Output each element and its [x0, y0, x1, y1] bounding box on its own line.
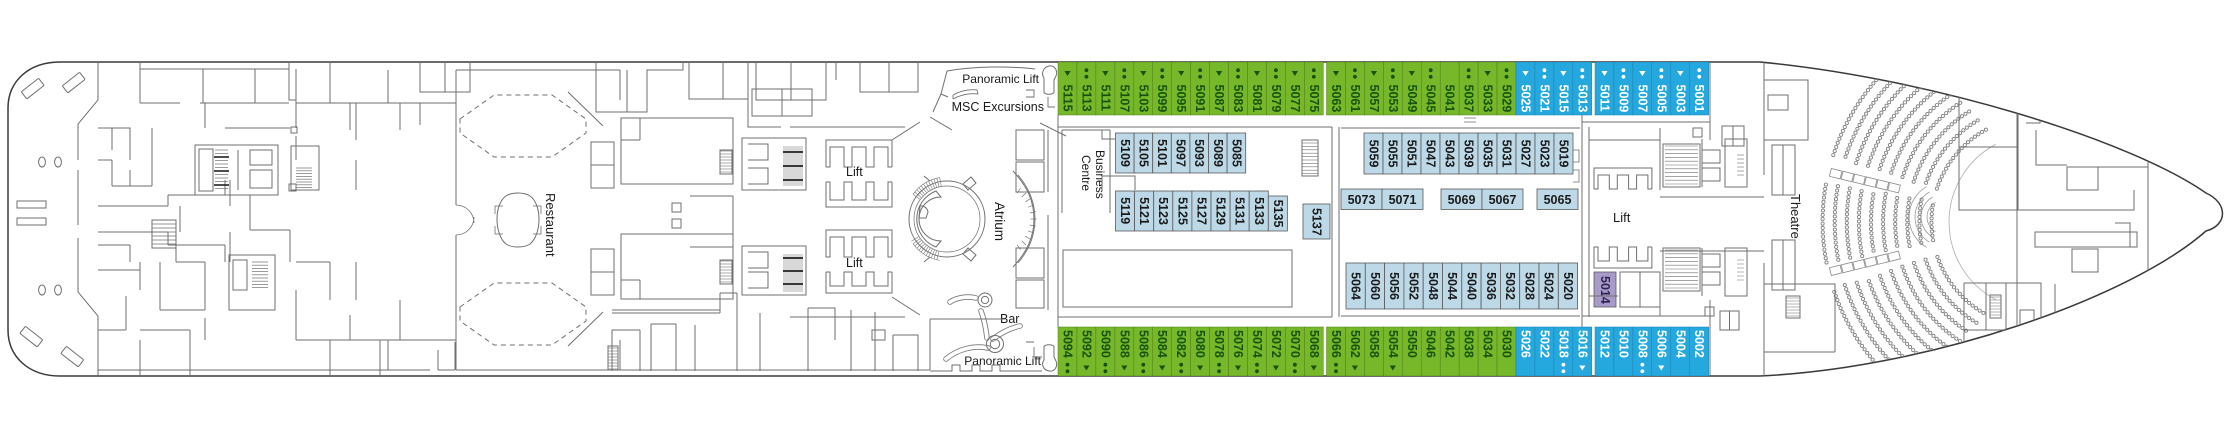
- svg-text:5113: 5113: [1079, 85, 1093, 112]
- svg-text:5067: 5067: [1489, 193, 1517, 207]
- svg-text:5036: 5036: [1484, 272, 1498, 300]
- svg-text:5133: 5133: [1252, 197, 1266, 225]
- svg-text:5087: 5087: [1212, 85, 1226, 113]
- svg-text:5045: 5045: [1424, 85, 1438, 113]
- svg-text:5052: 5052: [1407, 272, 1421, 300]
- svg-text:5082: 5082: [1174, 330, 1188, 358]
- svg-text:5048: 5048: [1426, 272, 1440, 300]
- svg-text:5091: 5091: [1193, 85, 1207, 113]
- svg-text:5065: 5065: [1544, 193, 1572, 207]
- svg-text:MSC Excursions: MSC Excursions: [952, 100, 1044, 114]
- svg-text:5010: 5010: [1616, 330, 1630, 358]
- svg-text:5012: 5012: [1597, 330, 1611, 358]
- svg-text:5047: 5047: [1424, 140, 1438, 168]
- svg-text:5062: 5062: [1348, 330, 1362, 358]
- svg-text:5013: 5013: [1575, 85, 1589, 113]
- svg-text:5039: 5039: [1462, 140, 1476, 168]
- svg-text:5125: 5125: [1175, 197, 1189, 225]
- svg-text:5044: 5044: [1445, 272, 1459, 300]
- svg-text:5081: 5081: [1250, 85, 1264, 113]
- svg-text:5008: 5008: [1635, 330, 1649, 358]
- svg-text:5037: 5037: [1462, 85, 1476, 113]
- svg-text:5068: 5068: [1307, 330, 1321, 358]
- svg-text:5038: 5038: [1462, 330, 1476, 358]
- svg-text:5083: 5083: [1231, 85, 1245, 113]
- svg-text:5055: 5055: [1386, 140, 1400, 168]
- svg-text:5129: 5129: [1214, 197, 1228, 225]
- svg-text:Panoramic Lift: Panoramic Lift: [964, 354, 1041, 368]
- svg-text:5031: 5031: [1500, 140, 1514, 168]
- svg-text:5007: 5007: [1635, 85, 1649, 113]
- svg-text:5041: 5041: [1443, 85, 1457, 113]
- svg-text:Centre: Centre: [1079, 155, 1093, 191]
- svg-text:5063: 5063: [1329, 85, 1343, 113]
- svg-text:5026: 5026: [1518, 330, 1532, 358]
- svg-text:5073: 5073: [1348, 193, 1376, 207]
- svg-text:5078: 5078: [1212, 330, 1226, 358]
- svg-text:5001: 5001: [1692, 85, 1706, 113]
- svg-text:5058: 5058: [1367, 330, 1381, 358]
- svg-text:5064: 5064: [1349, 272, 1363, 300]
- svg-text:5074: 5074: [1250, 330, 1264, 358]
- svg-text:5006: 5006: [1654, 330, 1668, 358]
- svg-text:5057: 5057: [1367, 85, 1381, 113]
- svg-text:5069: 5069: [1448, 193, 1476, 207]
- svg-text:5032: 5032: [1503, 272, 1517, 300]
- svg-text:Atrium: Atrium: [992, 202, 1007, 241]
- svg-text:5059: 5059: [1367, 140, 1381, 168]
- svg-text:5105: 5105: [1136, 139, 1150, 167]
- svg-text:5090: 5090: [1098, 330, 1112, 358]
- svg-text:5003: 5003: [1673, 85, 1687, 113]
- svg-text:5005: 5005: [1654, 85, 1668, 113]
- svg-text:5020: 5020: [1561, 272, 1575, 300]
- svg-text:5033: 5033: [1481, 85, 1495, 113]
- svg-text:Business: Business: [1093, 150, 1107, 199]
- svg-text:5101: 5101: [1155, 139, 1169, 167]
- svg-text:5089: 5089: [1211, 139, 1225, 167]
- svg-text:5107: 5107: [1117, 85, 1131, 113]
- svg-text:5109: 5109: [1118, 139, 1132, 167]
- svg-text:5137: 5137: [1310, 208, 1324, 236]
- svg-text:5053: 5053: [1386, 85, 1400, 113]
- svg-text:5086: 5086: [1136, 330, 1150, 358]
- svg-text:5009: 5009: [1616, 85, 1630, 113]
- svg-text:5027: 5027: [1519, 140, 1533, 168]
- svg-text:5015: 5015: [1556, 85, 1570, 113]
- svg-text:5016: 5016: [1575, 330, 1589, 358]
- svg-text:5076: 5076: [1231, 330, 1245, 358]
- svg-text:Restaurant: Restaurant: [543, 193, 558, 257]
- svg-text:5095: 5095: [1174, 85, 1188, 113]
- svg-text:5043: 5043: [1443, 140, 1457, 168]
- svg-text:5092: 5092: [1079, 330, 1093, 358]
- svg-text:5071: 5071: [1389, 193, 1417, 207]
- svg-text:5103: 5103: [1136, 85, 1150, 113]
- svg-text:Panoramic Lift: Panoramic Lift: [962, 72, 1039, 86]
- svg-text:5079: 5079: [1269, 85, 1283, 113]
- svg-text:5018: 5018: [1556, 330, 1570, 358]
- svg-text:5030: 5030: [1500, 330, 1514, 358]
- svg-text:5042: 5042: [1443, 330, 1457, 358]
- svg-text:5049: 5049: [1405, 85, 1419, 113]
- svg-text:5014: 5014: [1598, 276, 1612, 304]
- svg-text:5127: 5127: [1195, 197, 1209, 225]
- svg-text:5040: 5040: [1465, 272, 1479, 300]
- svg-text:Lift: Lift: [1613, 210, 1631, 225]
- svg-text:5066: 5066: [1329, 330, 1343, 358]
- svg-text:5050: 5050: [1405, 330, 1419, 358]
- svg-text:5084: 5084: [1155, 330, 1169, 358]
- svg-text:Lift: Lift: [846, 256, 863, 270]
- svg-text:5011: 5011: [1597, 85, 1611, 112]
- svg-text:5099: 5099: [1155, 85, 1169, 113]
- svg-text:5046: 5046: [1424, 330, 1438, 358]
- svg-text:5021: 5021: [1537, 85, 1551, 113]
- svg-text:5094: 5094: [1060, 330, 1074, 358]
- svg-text:5002: 5002: [1692, 330, 1706, 358]
- svg-text:5093: 5093: [1192, 139, 1206, 167]
- svg-text:5035: 5035: [1481, 140, 1495, 168]
- svg-text:Theatre: Theatre: [1788, 194, 1803, 239]
- svg-text:5025: 5025: [1518, 85, 1532, 113]
- svg-text:5004: 5004: [1673, 330, 1687, 358]
- svg-text:5051: 5051: [1405, 140, 1419, 168]
- svg-text:5070: 5070: [1288, 330, 1302, 358]
- svg-text:5111: 5111: [1098, 85, 1112, 111]
- svg-text:5060: 5060: [1368, 272, 1382, 300]
- svg-text:5119: 5119: [1118, 197, 1132, 224]
- svg-text:5019: 5019: [1557, 140, 1571, 168]
- svg-text:5077: 5077: [1288, 85, 1302, 113]
- svg-text:5072: 5072: [1269, 330, 1283, 358]
- svg-text:5061: 5061: [1348, 85, 1362, 113]
- svg-text:5056: 5056: [1387, 272, 1401, 300]
- svg-text:5023: 5023: [1538, 140, 1552, 168]
- svg-text:5054: 5054: [1386, 330, 1400, 358]
- svg-text:5123: 5123: [1156, 197, 1170, 225]
- svg-text:5028: 5028: [1522, 272, 1536, 300]
- svg-text:5097: 5097: [1174, 139, 1188, 167]
- svg-text:5085: 5085: [1229, 139, 1243, 167]
- svg-text:5024: 5024: [1542, 272, 1556, 300]
- svg-text:5075: 5075: [1307, 85, 1321, 113]
- svg-text:5135: 5135: [1271, 200, 1285, 228]
- svg-text:5029: 5029: [1500, 85, 1514, 113]
- svg-text:5131: 5131: [1233, 197, 1247, 225]
- svg-text:5034: 5034: [1481, 330, 1495, 358]
- svg-text:5080: 5080: [1193, 330, 1207, 358]
- svg-text:5088: 5088: [1117, 330, 1131, 358]
- svg-text:5121: 5121: [1137, 197, 1151, 225]
- svg-text:Lift: Lift: [846, 165, 863, 179]
- svg-text:5022: 5022: [1537, 330, 1551, 358]
- svg-text:5115: 5115: [1060, 85, 1074, 112]
